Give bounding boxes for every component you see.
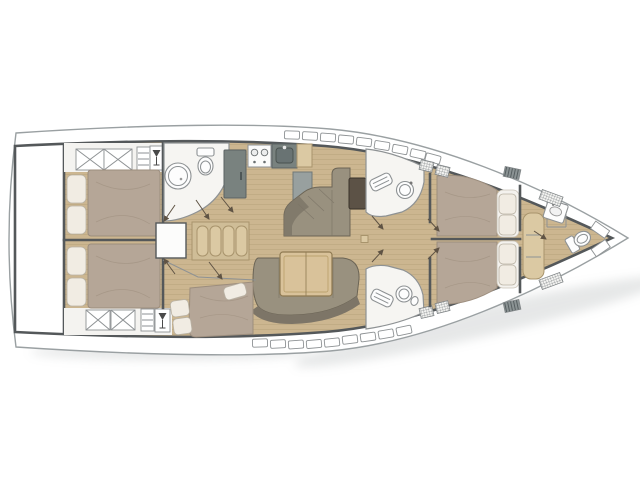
hull-window [324,338,340,348]
salon [251,252,360,324]
step [210,226,221,256]
hull-window [302,132,317,141]
hull-window [360,332,376,342]
hull-window [338,135,354,144]
galley-counter-end [297,144,312,167]
double-bed [88,170,160,236]
faucet [410,182,413,185]
double-bed [88,244,160,308]
companionway [156,222,249,260]
toilet-tank [197,148,214,156]
hull-window [306,339,322,348]
companionway-locker [156,223,186,258]
pillow [67,175,86,203]
pillow [499,265,516,285]
stove-burner [261,149,268,156]
floor-plan-svg [0,0,640,480]
hull-window [320,133,336,142]
stove-knob [253,161,256,164]
pillow [67,206,86,234]
hull-window [288,340,304,349]
toilet [396,286,412,302]
hull-window [374,140,390,150]
bow-seat [523,213,544,279]
pillow [499,244,516,264]
pillow [67,278,86,306]
pillow [499,194,516,214]
hull-window [284,131,299,140]
chart-table [349,178,366,209]
shower-drain [180,178,183,181]
step [223,226,234,256]
hull-window [270,340,285,349]
pillow [499,215,516,235]
galley-sink-basin [276,148,293,163]
stove-knob [263,161,266,164]
step [197,226,208,256]
hull-window [252,339,267,348]
pillow [170,299,190,317]
hull-window [356,137,372,147]
step [236,226,247,256]
hull-window [342,335,358,345]
pillow [67,247,86,275]
mast-post [361,236,368,243]
stove [248,145,271,167]
boat-floor-plan [0,0,640,480]
faucet [283,146,287,150]
stove-burner [251,149,258,156]
aft-cabin-top [64,143,163,236]
pillow [172,317,192,335]
fridge [224,150,246,198]
